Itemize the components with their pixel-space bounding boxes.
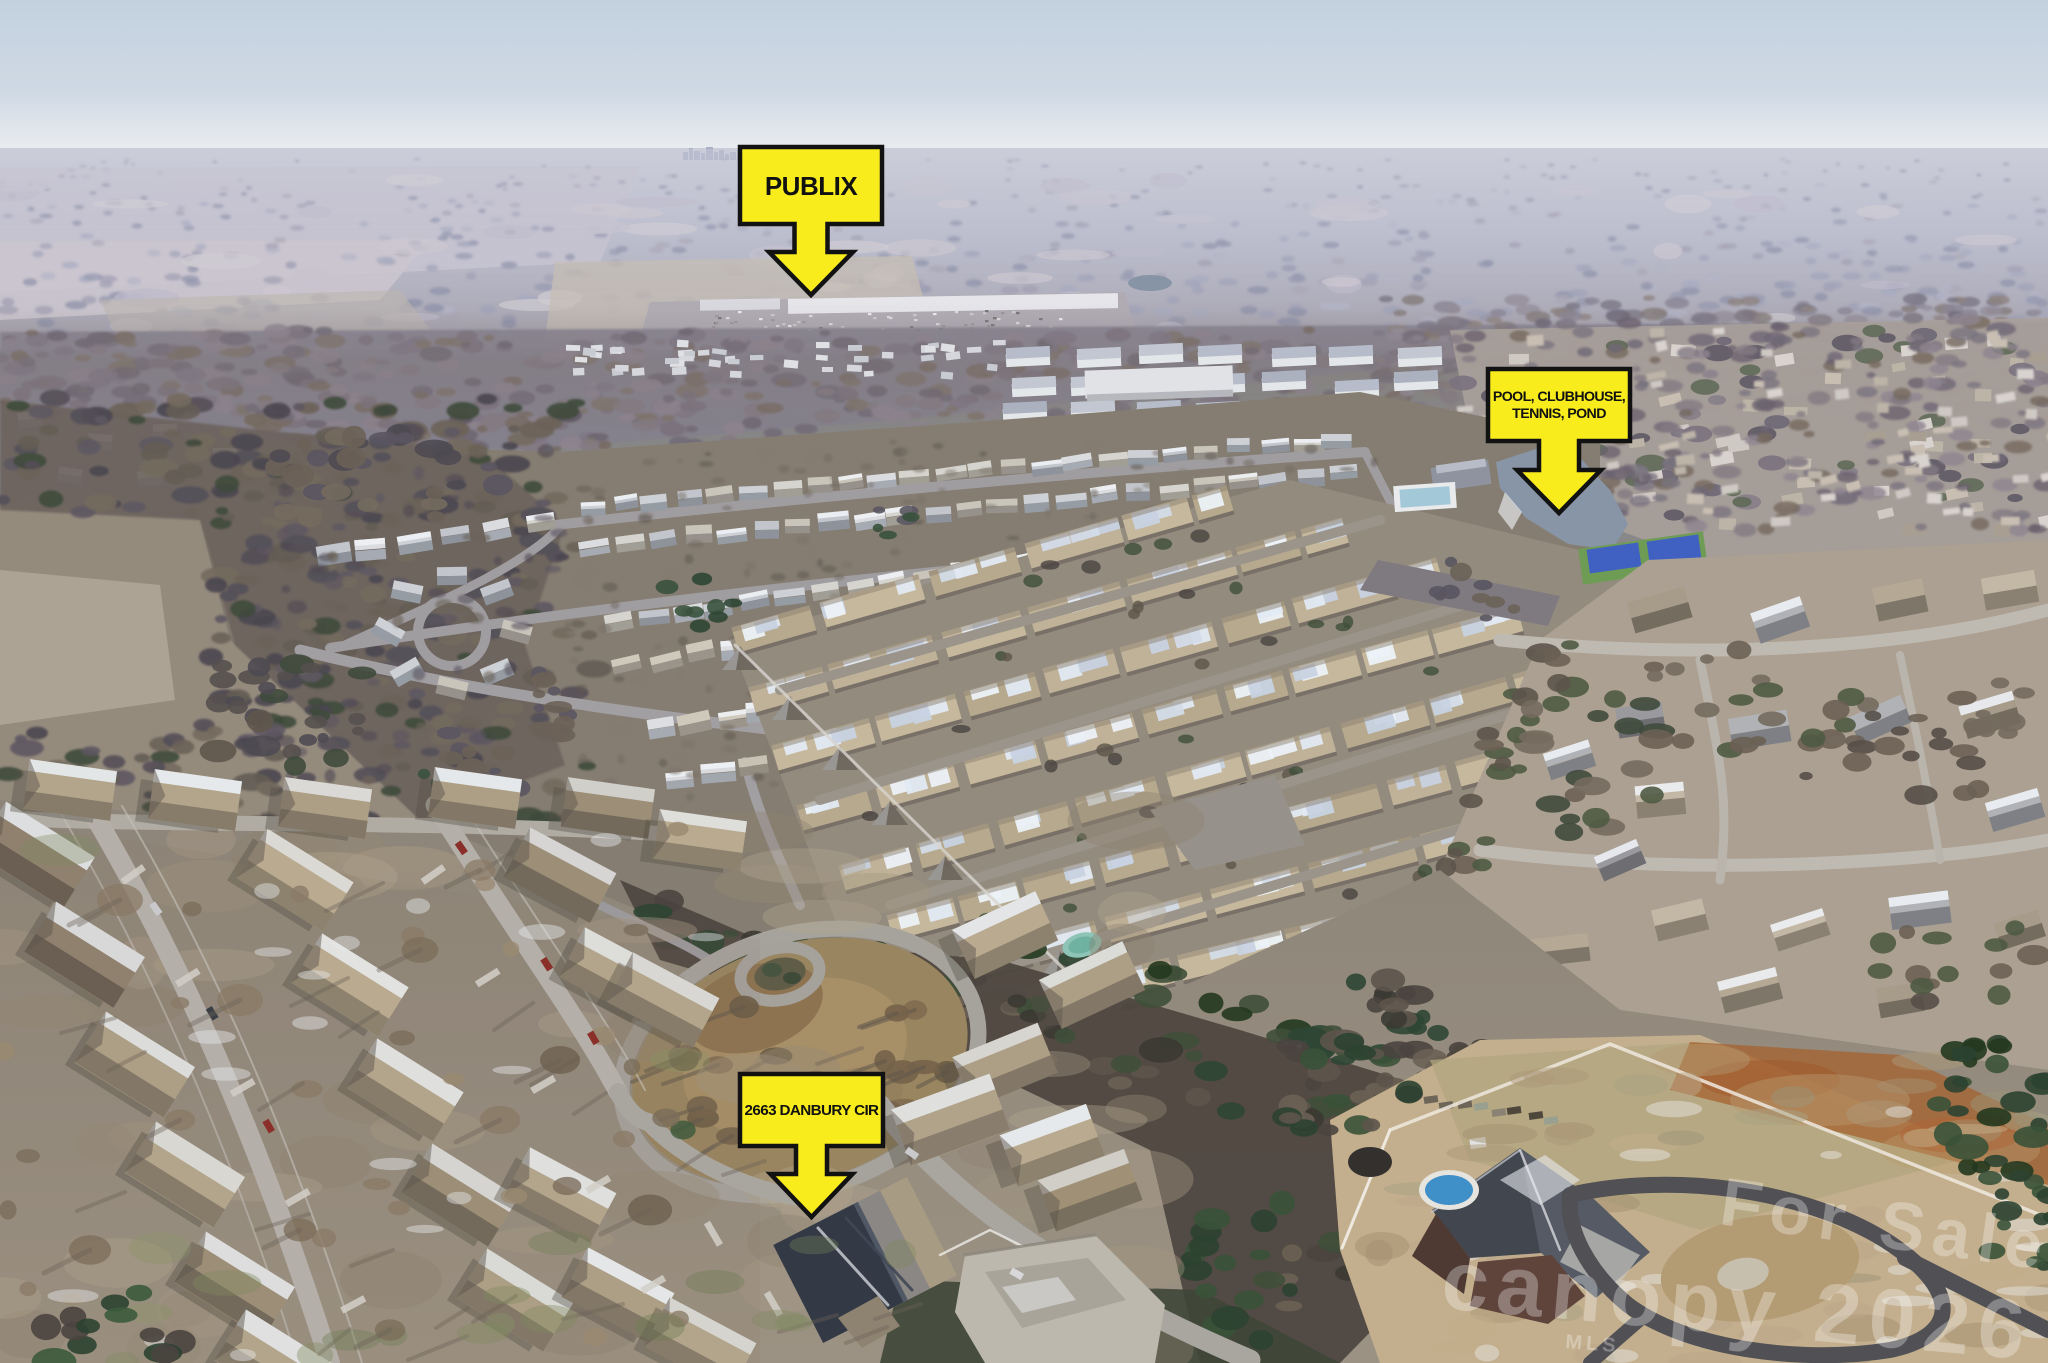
svg-text:PUBLIX: PUBLIX <box>765 171 859 201</box>
svg-text:2663 DANBURY CIR: 2663 DANBURY CIR <box>745 1102 880 1119</box>
svg-text:POOL, CLUBHOUSE,: POOL, CLUBHOUSE, <box>1493 389 1625 405</box>
svg-text:TENNIS, POND: TENNIS, POND <box>1512 406 1606 422</box>
svg-text:MLS: MLS <box>1565 1331 1621 1357</box>
